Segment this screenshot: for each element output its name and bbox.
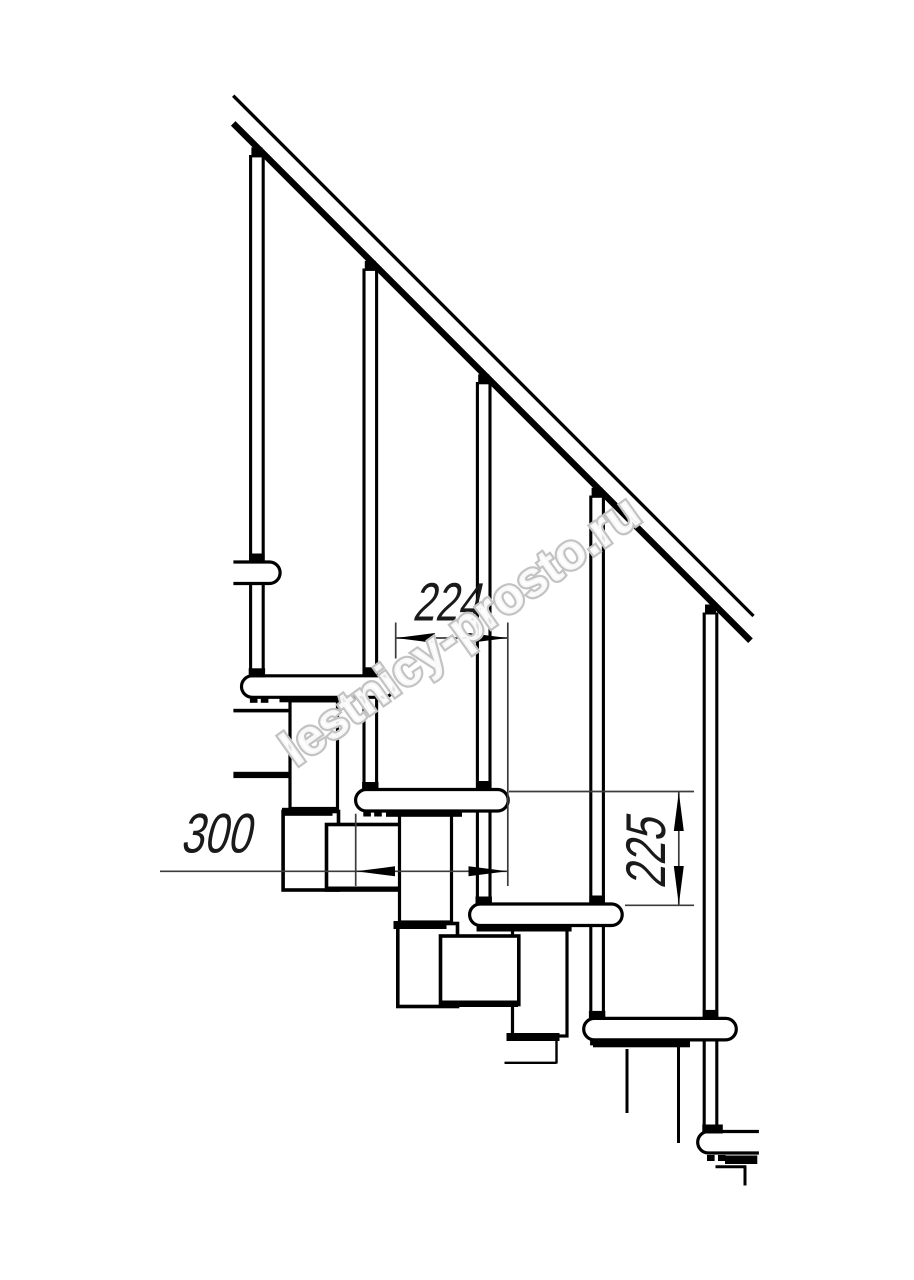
svg-text:300: 300 — [177, 801, 262, 864]
svg-text:225: 225 — [614, 807, 677, 892]
